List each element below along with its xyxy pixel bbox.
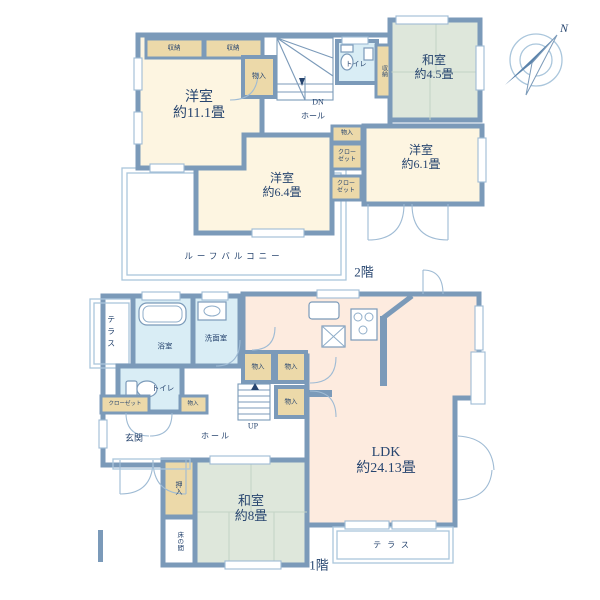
room-label-washitsu-8: 和室 約8畳 (235, 494, 268, 524)
room-label-yoshitsu-61: 洋室 約6.1畳 (401, 144, 440, 172)
room-label-yoshitsu-64: 洋室 約6.4畳 (262, 172, 301, 200)
closet-line1: クロー (337, 181, 355, 188)
room-label-ldk: LDK 約24.13畳 (356, 445, 416, 477)
stairs-up-label: UP (248, 421, 258, 430)
terrace-south-label: テラス (373, 540, 415, 549)
room-name: 和室 (235, 494, 268, 509)
room-size: 約4.5畳 (414, 68, 453, 82)
room-name: 洋室 (173, 90, 225, 106)
room-label-yoshitsu-111: 洋室 約11.1畳 (173, 90, 225, 122)
room-name: 洋室 (401, 144, 440, 158)
room-size: 約11.1畳 (173, 106, 225, 122)
floorplan: 洋室 約11.1畳 洋室 約6.4畳 洋室 約6.1畳 和室 約4.5畳 トイレ… (0, 0, 600, 600)
closet-line1: クロー (338, 150, 356, 157)
compass-north-label: N (560, 22, 568, 36)
room-label-toilet-2f: トイレ (346, 60, 367, 68)
floorplan-graphic (0, 0, 600, 600)
monoiri-label-2f-top: 物入 (252, 72, 266, 80)
terrace-left-label: テラス (106, 315, 115, 351)
washroom-shape (193, 296, 240, 366)
monoiri-toilet-label: 物入 (187, 401, 198, 407)
closet-label-2f-upper: クロー ゼット (338, 150, 356, 164)
monoiri-label-2f-mid: 物入 (341, 131, 353, 138)
monoiri-a-label: 物入 (252, 363, 265, 370)
compass (505, 34, 562, 95)
room-name: LDK (356, 445, 416, 461)
room-name: 洋室 (262, 172, 301, 186)
genkan-label: 玄関 (125, 433, 143, 443)
tokonoma-label: 床の間 (175, 531, 182, 551)
monoiri-b-label: 物入 (285, 363, 298, 370)
hall-2f-label: ホール (301, 111, 325, 120)
storage-label-1: 収納 (168, 44, 181, 51)
monoiri-c-label: 物入 (285, 398, 298, 405)
oshiire-label: 押入 (175, 481, 183, 495)
room-size: 約8畳 (235, 509, 268, 524)
closet-label-2f-lower: クロー ゼット (337, 181, 355, 195)
closet-1f-label: クローゼット (108, 401, 141, 407)
room-size: 約6.4畳 (262, 186, 301, 200)
bathroom-label: 浴室 (158, 343, 173, 352)
hall-1f-label: ホール (201, 431, 231, 440)
roof-balcony-label: ルーフバルコニー (184, 252, 283, 262)
closet-line2: ゼット (338, 157, 356, 164)
storage-label-side: 収納 (380, 65, 387, 77)
floor-2-label: 2階 (354, 266, 374, 281)
stairs-dn-label: DN (312, 97, 324, 106)
toilet-1f-label: トイレ (152, 385, 175, 394)
room-name: 和室 (414, 54, 453, 68)
room-label-washitsu-45: 和室 約4.5畳 (414, 54, 453, 82)
washroom-label: 洗面室 (205, 335, 228, 344)
storage-label-2: 収納 (227, 44, 240, 51)
bathroom-shape (133, 296, 193, 366)
room-size: 約6.1畳 (401, 158, 440, 172)
floor-1-label: 1階 (309, 559, 329, 574)
closet-line2: ゼット (337, 188, 355, 195)
room-size: 約24.13畳 (356, 461, 416, 477)
